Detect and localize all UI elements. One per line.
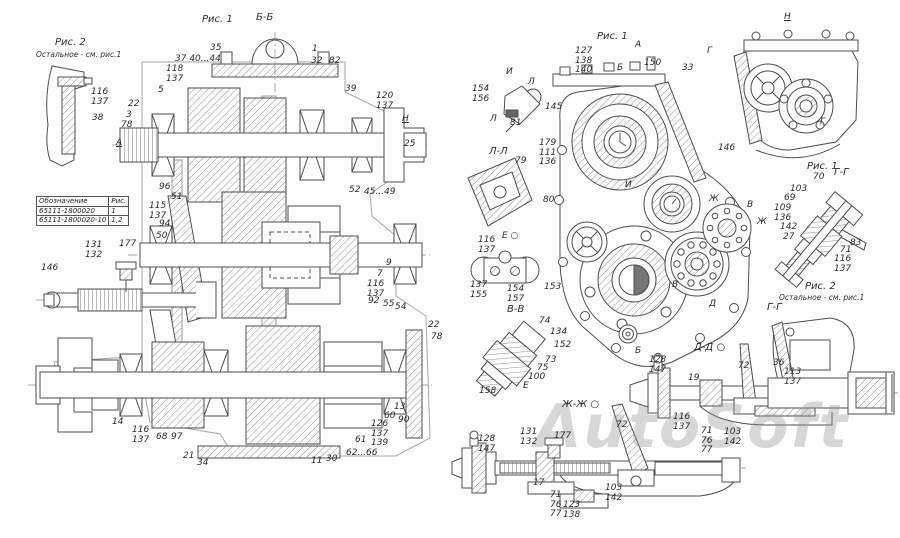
callout-label: Рис. 1 — [202, 15, 233, 25]
callout-label: 103 142 — [724, 428, 741, 447]
callout-label: Б — [635, 347, 641, 357]
parts-table: ОбозначениеРис.65111-1800020165111-18000… — [36, 196, 129, 226]
callout-label: 50 — [156, 232, 167, 242]
callout-label: 153 — [544, 283, 561, 293]
callout-label: 45...49 — [364, 188, 396, 198]
callout-label: 134 — [550, 328, 567, 338]
callout-label: 83 — [850, 239, 861, 249]
callout-label: Д-Д ○ — [694, 343, 725, 353]
callout-label: 52 — [349, 186, 360, 196]
callout-label: 72 — [616, 421, 627, 431]
callout-label: Л — [528, 78, 535, 88]
callout-label: 96 — [159, 183, 170, 193]
callout-label: Ж — [757, 218, 767, 228]
callout-label: 68 — [156, 433, 167, 443]
callout-label: Н — [784, 13, 791, 23]
callout-label: 116 137 — [673, 413, 690, 432]
callout-label: 109 136 — [774, 204, 791, 223]
callout-label: 177 — [554, 432, 571, 442]
rear-view-drawing — [553, 57, 751, 367]
callout-label: 94 — [159, 220, 170, 230]
callout-label: Г — [707, 47, 712, 57]
callout-label: 35 — [210, 44, 221, 54]
callout-label: 146 — [718, 144, 735, 154]
callout-label: 70 — [813, 173, 824, 183]
callout-label: 137 155 — [470, 281, 487, 300]
callout-label: 113 137 — [784, 368, 801, 387]
callout-label: Л-Л — [489, 147, 508, 157]
callout-label: Остальное - см. рис.1 — [779, 293, 864, 303]
callout-label: 154 156 — [472, 85, 489, 104]
callout-label: 21 — [183, 452, 194, 462]
callout-label: Г — [820, 118, 825, 128]
callout-label: 1 — [312, 45, 318, 55]
callout-label: 78 — [121, 121, 132, 131]
callout-label: 25 — [404, 140, 415, 150]
callout-label: 131 132 — [520, 428, 537, 447]
callout-label: 81 — [510, 119, 521, 129]
parts-table-cell: 65111-1800020-10 — [37, 216, 109, 226]
callout-label: В-В — [507, 305, 524, 315]
callout-label: 71 76 77 — [550, 491, 561, 520]
callout-label: Остальное - см. рис.1 — [36, 50, 121, 60]
callout-label: 100 — [528, 373, 545, 383]
callout-label: Б — [617, 64, 623, 74]
callout-label: 39 — [345, 85, 356, 95]
parts-table-header: Рис. — [109, 197, 129, 207]
callout-label: 158 — [479, 387, 496, 397]
callout-label: Е ○ — [502, 232, 518, 242]
callout-label: 51 — [171, 193, 182, 203]
callout-label: 116 137 — [91, 88, 108, 107]
callout-label: 34 — [197, 459, 208, 469]
callout-label: 103 142 — [605, 484, 622, 503]
callout-label: 116 137 — [132, 426, 149, 445]
parts-table-cell: 65111-1800020 — [37, 206, 109, 216]
callout-label: 116 137 — [478, 236, 495, 255]
callout-label: 82 — [329, 57, 340, 67]
callout-label: 62...66 — [346, 449, 378, 459]
callout-label: И — [625, 181, 632, 191]
callout-label: 128 147 — [649, 356, 666, 375]
callout-label: Рис. 1 — [597, 32, 628, 42]
callout-label: 80 — [543, 196, 554, 206]
callout-label: 118 137 — [166, 65, 183, 84]
parts-table-header: Обозначение — [37, 197, 109, 207]
callout-label: Г-Г — [767, 303, 782, 313]
callout-label: Л — [490, 115, 497, 125]
diagram-page: AutoSoft ОбозначениеРис.65111-1800020165… — [0, 0, 900, 538]
callout-label: 17 — [533, 479, 544, 489]
callout-label: 152 — [554, 341, 571, 351]
callout-label: 9 — [386, 259, 392, 269]
callout-label: Г-Г — [834, 168, 849, 178]
callout-label: 33 — [682, 64, 693, 74]
callout-label: 177 — [119, 240, 136, 250]
callout-label: Рис. 2 — [55, 38, 86, 48]
callout-label: 126 137 139 — [371, 420, 388, 449]
callout-label: 60 — [384, 412, 395, 422]
parts-table-row: 65111-18000201 — [37, 206, 129, 216]
callout-label: 74 — [539, 317, 550, 327]
callout-label: 128 147 — [478, 435, 495, 454]
callout-label: 79 — [515, 157, 526, 167]
callout-label: 22 — [428, 321, 439, 331]
callout-label: 13 — [394, 403, 405, 413]
inset-fig2-drawing — [47, 66, 92, 166]
callout-label: Ж — [709, 195, 719, 205]
callout-label: 154 157 — [507, 285, 524, 304]
callout-label: 150 — [644, 59, 661, 69]
parts-table-cell: 1,2 — [109, 216, 129, 226]
callout-label: А — [635, 41, 641, 51]
callout-label: 71 76 77 — [701, 427, 712, 456]
callout-label: 116 137 — [834, 255, 851, 274]
callout-label: Д — [709, 300, 716, 310]
callout-label: Рис. 2 — [805, 282, 836, 292]
callout-label: 30 — [326, 455, 337, 465]
callout-label: 127 138 140 — [575, 47, 592, 76]
callout-label: И — [506, 68, 513, 78]
callout-label: 54 — [395, 303, 406, 313]
bracket-view-drawing — [734, 30, 858, 158]
callout-label: 90 — [398, 416, 409, 426]
callout-label: А — [116, 139, 122, 149]
parts-table-row: 65111-1800020-101,2 — [37, 216, 129, 226]
callout-label: 32 — [311, 57, 322, 67]
callout-label: Е — [523, 382, 529, 392]
callout-label: 72 — [738, 362, 749, 372]
callout-label: 19 — [688, 374, 699, 384]
callout-label: 22 — [128, 100, 139, 110]
callout-label: 145 — [545, 103, 562, 113]
callout-label: 120 137 — [376, 92, 393, 111]
callout-label: 61 — [355, 436, 366, 446]
callout-label: 5 — [158, 86, 164, 96]
callout-label: Ж-Ж ○ — [562, 400, 599, 410]
callout-label: 36 — [773, 359, 784, 369]
callout-label: 38 — [92, 114, 103, 124]
callout-label: 146 — [41, 264, 58, 274]
callout-label: 179 111 136 — [539, 139, 556, 168]
callout-label: 14 — [112, 418, 123, 428]
callout-label: 78 — [431, 333, 442, 343]
callout-label: Б-Б — [256, 13, 273, 23]
callout-label: 11 — [311, 457, 322, 467]
callout-label: 92 — [368, 297, 379, 307]
callout-label: 131 132 — [85, 241, 102, 260]
callout-label: 123 138 — [563, 501, 580, 520]
callout-label: Н — [402, 115, 409, 125]
callout-label: 97 — [171, 433, 182, 443]
part-e-drawing — [471, 251, 539, 283]
parts-table-cell: 1 — [109, 206, 129, 216]
inset-ll-drawing — [468, 158, 532, 226]
callout-label: В — [747, 201, 753, 211]
callout-label: В — [672, 281, 678, 291]
callout-label: 27 — [783, 233, 794, 243]
callout-label: 55 — [383, 300, 394, 310]
